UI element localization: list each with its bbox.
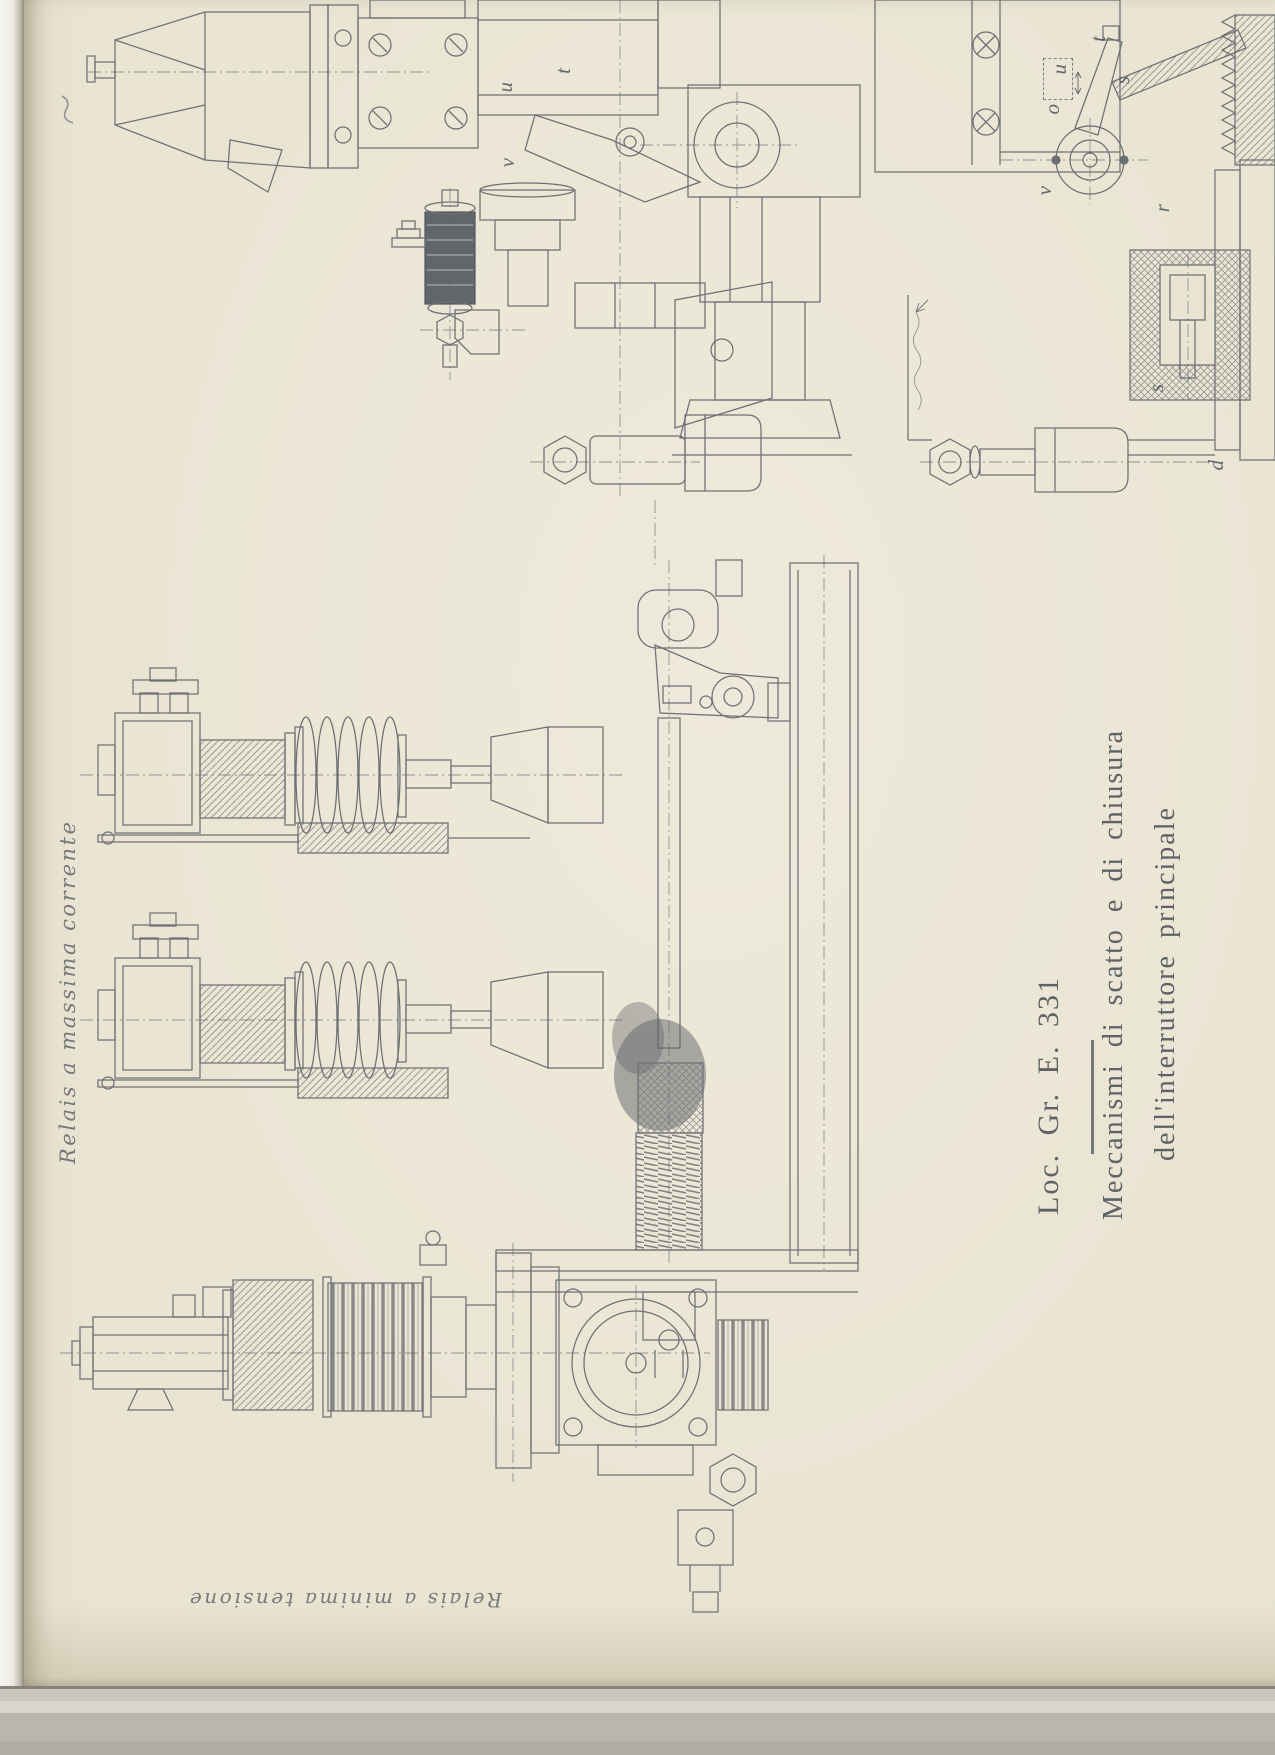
part-letter-r: r: [1152, 204, 1173, 212]
pen-mark: [62, 96, 73, 123]
top-left-drawing: [87, 0, 860, 491]
part-letter-s: s: [1112, 76, 1133, 84]
plate-caption-line2: dell'interruttore principale: [1150, 772, 1182, 1196]
top-right-drawing: [875, 0, 1275, 492]
plate-caption-line1: Meccanismi di scatto e di chiusura: [1098, 690, 1130, 1260]
scanner-bed-strip: [0, 1686, 1275, 1755]
handwritten-label-massima-corrente: Relais a massima corrente: [56, 772, 80, 1164]
part-letter-s: s: [1146, 384, 1167, 392]
plate-code: Loc. Gr. E. 331: [1032, 968, 1066, 1224]
engineering-drawing-plate: [0, 0, 1275, 1690]
part-letter-u: u: [495, 82, 516, 93]
main-drawing: [72, 560, 858, 1612]
part-letter-d: d: [1206, 460, 1227, 471]
part-letter-u: u: [1049, 64, 1070, 75]
part-letter-t: t: [553, 68, 574, 74]
scanned-plate-page: { "document": { "plate_code": "Loc. Gr. …: [0, 0, 1275, 1755]
part-letter-v: v: [497, 158, 518, 167]
part-letter-v: v: [1034, 186, 1055, 195]
page-bottom-curl-shadow: [24, 1600, 1275, 1690]
handwritten-annotation-squiggle: [913, 312, 921, 410]
part-letter-t: t: [1088, 36, 1109, 42]
title-rule: [1091, 1040, 1094, 1154]
part-letter-o: o: [1042, 104, 1063, 115]
